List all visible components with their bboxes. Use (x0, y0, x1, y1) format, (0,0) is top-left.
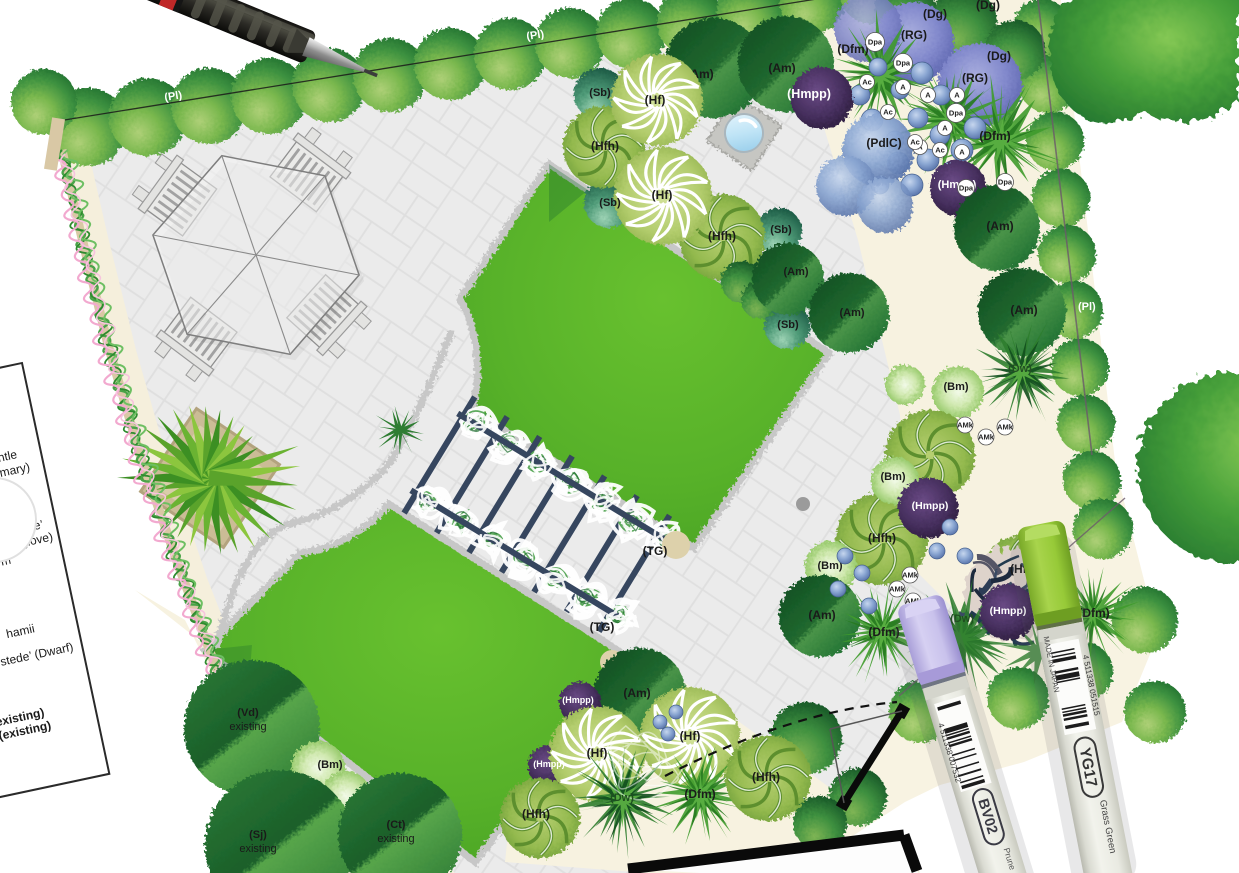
svg-text:existing: existing (229, 721, 266, 733)
svg-text:(Hf): (Hf) (680, 729, 701, 743)
svg-text:(Dfm): (Dfm) (837, 42, 868, 56)
svg-text:(Dfm): (Dfm) (684, 787, 715, 801)
svg-text:Ac: Ac (935, 146, 945, 155)
svg-text:(Hfh): (Hfh) (591, 139, 619, 153)
svg-text:AMk: AMk (902, 571, 919, 580)
svg-text:existing: existing (239, 843, 276, 855)
svg-text:Dpa: Dpa (998, 178, 1013, 187)
svg-text:Dpa: Dpa (868, 38, 883, 47)
svg-text:(Dw): (Dw) (610, 792, 634, 804)
svg-text:(Sb): (Sb) (589, 87, 611, 99)
svg-text:(Am): (Am) (1010, 303, 1037, 317)
svg-text:AMk: AMk (997, 423, 1014, 432)
svg-text:(Hf): (Hf) (645, 93, 666, 107)
svg-text:(Dw): (Dw) (1008, 363, 1032, 375)
svg-text:(TG): (TG) (643, 544, 668, 558)
svg-text:Dpa: Dpa (959, 184, 974, 193)
svg-text:(Dfm): (Dfm) (979, 129, 1010, 143)
svg-text:existing: existing (377, 833, 414, 845)
svg-text:(Hmpp): (Hmpp) (562, 695, 594, 705)
svg-text:Ac: Ac (910, 138, 920, 147)
svg-text:(TG): (TG) (590, 620, 615, 634)
svg-text:(RG): (RG) (962, 71, 988, 85)
svg-text:(Am): (Am) (986, 219, 1013, 233)
svg-text:A: A (954, 91, 960, 100)
svg-text:(RG): (RG) (901, 28, 927, 42)
svg-text:(Hf): (Hf) (652, 188, 673, 202)
svg-text:(Dg): (Dg) (987, 49, 1011, 63)
svg-text:(Am): (Am) (768, 61, 795, 75)
svg-text:(Sj): (Sj) (249, 829, 267, 841)
svg-text:(Bm): (Bm) (943, 381, 968, 393)
svg-text:(Am): (Am) (623, 686, 650, 700)
svg-text:A: A (942, 124, 948, 133)
svg-text:(Bm): (Bm) (880, 471, 905, 483)
svg-text:(Am): (Am) (783, 266, 808, 278)
svg-text:(Hmpp): (Hmpp) (533, 759, 565, 769)
svg-text:Dpa: Dpa (896, 59, 911, 68)
svg-text:(Am): (Am) (839, 307, 864, 319)
svg-text:A: A (959, 148, 965, 157)
svg-text:(Pl): (Pl) (1078, 301, 1096, 313)
svg-text:(Ct): (Ct) (387, 819, 406, 831)
svg-text:(Sb): (Sb) (777, 319, 799, 331)
svg-text:(Hmpp): (Hmpp) (912, 500, 949, 512)
svg-text:(Dg): (Dg) (923, 7, 947, 21)
svg-text:(Bm): (Bm) (317, 759, 342, 771)
svg-text:A: A (925, 91, 931, 100)
svg-text:AMk: AMk (957, 421, 974, 430)
svg-text:(Hfh): (Hfh) (522, 807, 550, 821)
svg-text:(Sb): (Sb) (770, 224, 792, 236)
svg-text:Ac: Ac (862, 78, 872, 87)
svg-text:(Dg): (Dg) (976, 0, 1000, 12)
svg-text:(Am): (Am) (808, 608, 835, 622)
svg-text:(PdlC): (PdlC) (866, 136, 901, 150)
svg-text:(Sb): (Sb) (599, 197, 621, 209)
svg-text:(Hmpp): (Hmpp) (787, 87, 831, 101)
svg-text:(Hfh): (Hfh) (708, 229, 736, 243)
svg-text:(Hfh): (Hfh) (752, 770, 780, 784)
svg-text:(Vd): (Vd) (237, 707, 259, 719)
svg-text:(Hfh): (Hfh) (868, 531, 896, 545)
svg-text:A: A (900, 83, 906, 92)
svg-text:Ac: Ac (883, 108, 893, 117)
svg-text:(Hf): (Hf) (587, 746, 608, 760)
svg-text:Dpa: Dpa (949, 109, 964, 118)
svg-text:AMk: AMk (978, 433, 995, 442)
svg-text:AMk: AMk (889, 585, 906, 594)
